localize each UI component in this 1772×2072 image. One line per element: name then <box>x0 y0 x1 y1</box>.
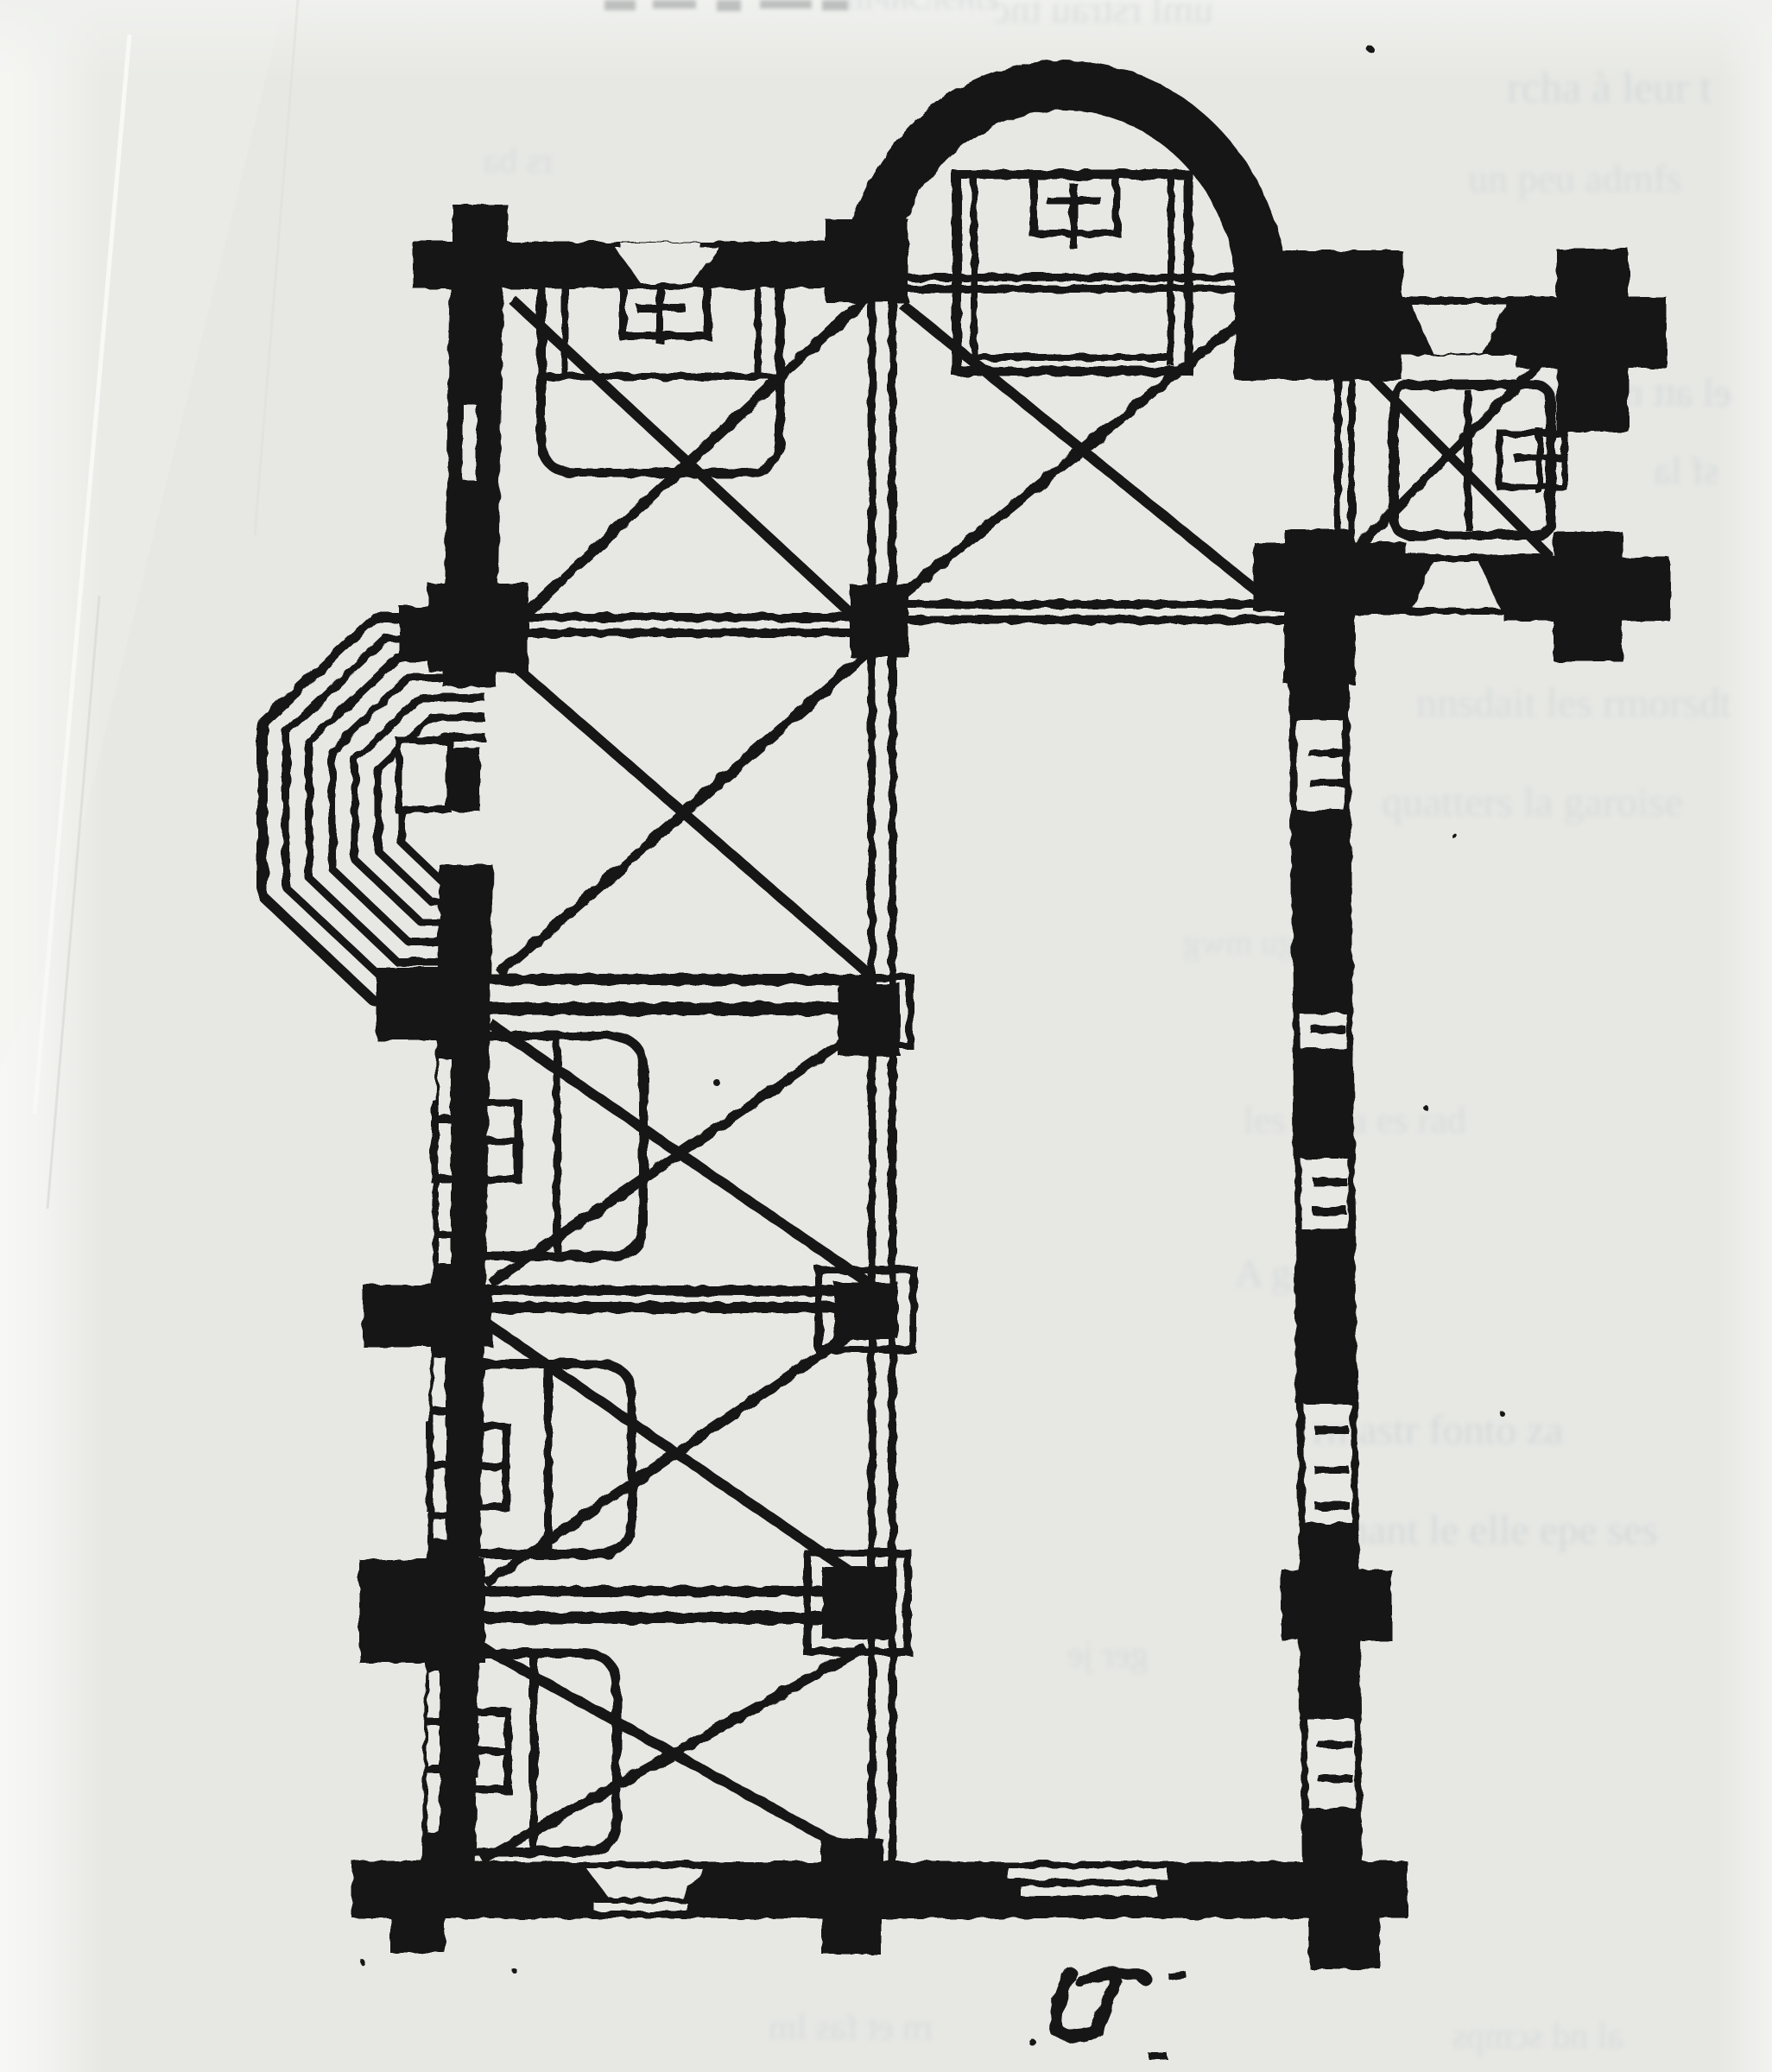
svg-text:rn et fas lm: rn et fas lm <box>769 2008 933 2048</box>
svg-text:gu mwg: gu mwg <box>1183 923 1295 962</box>
svg-text:nnsdait les rmorsdt: nnsdait les rmorsdt <box>1416 680 1732 726</box>
svg-text:mчисленts: mчисленts <box>846 0 998 16</box>
svg-text:uml rstrau tnc: uml rstrau tnc <box>993 0 1214 31</box>
svg-text:quatters la garoise: quatters la garoise <box>1382 780 1683 825</box>
svg-text:rs ba: rs ba <box>483 142 553 181</box>
svg-text:ger je: ger je <box>1067 1635 1149 1675</box>
svg-text:nant le elle epe ses: nant le elle epe ses <box>1347 1507 1658 1553</box>
svg-text:rcha à leur t: rcha à leur t <box>1507 63 1712 111</box>
svg-text:un peu admfs: un peu admfs <box>1468 156 1682 200</box>
svg-text:les rmra es rad: les rmra es rad <box>1244 1099 1466 1141</box>
svg-text:sf la: sf la <box>1654 450 1718 492</box>
svg-text:al nd scmps: al nd scmps <box>1452 2017 1623 2056</box>
svg-text:rmastr fonto za: rmastr fonto za <box>1313 1407 1564 1453</box>
